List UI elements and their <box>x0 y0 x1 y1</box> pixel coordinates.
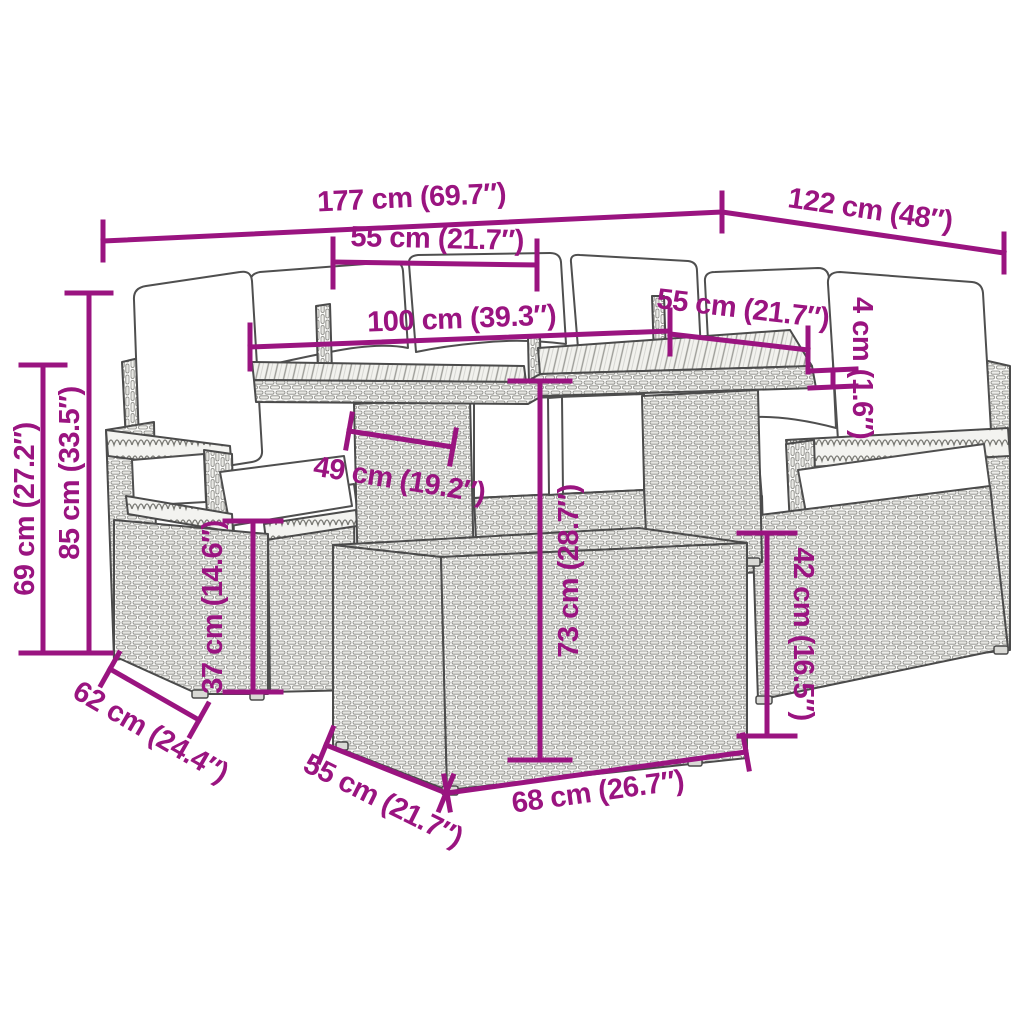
chair-base <box>114 520 268 694</box>
table-center-post <box>548 397 563 495</box>
ottoman-front-face <box>441 543 747 790</box>
dim-label: 122 cm (48″) <box>786 182 955 238</box>
dim-total-depth-122: 122 cm (48″) <box>722 182 1004 272</box>
dim-label: 85 cm (33.5″) <box>54 386 86 559</box>
product-dimension-diagram: 177 cm (69.7″) 122 cm (48″) 55 cm (21.7″… <box>0 0 1024 1024</box>
diagram-svg: 177 cm (69.7″) 122 cm (48″) 55 cm (21.7″… <box>0 0 1024 1024</box>
tabletop-slats-left <box>252 362 526 382</box>
chair-foot <box>994 646 1008 654</box>
dim-label: 37 cm (14.6″) <box>197 520 229 693</box>
dim-label: 55 cm (21.7″) <box>350 221 524 257</box>
dim-label: 69 cm (27.2″) <box>9 422 41 595</box>
dim-label: 73 cm (28.7″) <box>553 484 585 657</box>
dim-back-height-85: 85 cm (33.5″) <box>54 293 111 653</box>
dim-label: 177 cm (69.7″) <box>316 178 506 219</box>
dim-label: 42 cm (16.5″) <box>787 547 819 720</box>
dim-label: 4 cm (1.6″) <box>846 297 878 439</box>
chair-foot <box>756 696 772 704</box>
table-foot <box>746 558 760 566</box>
